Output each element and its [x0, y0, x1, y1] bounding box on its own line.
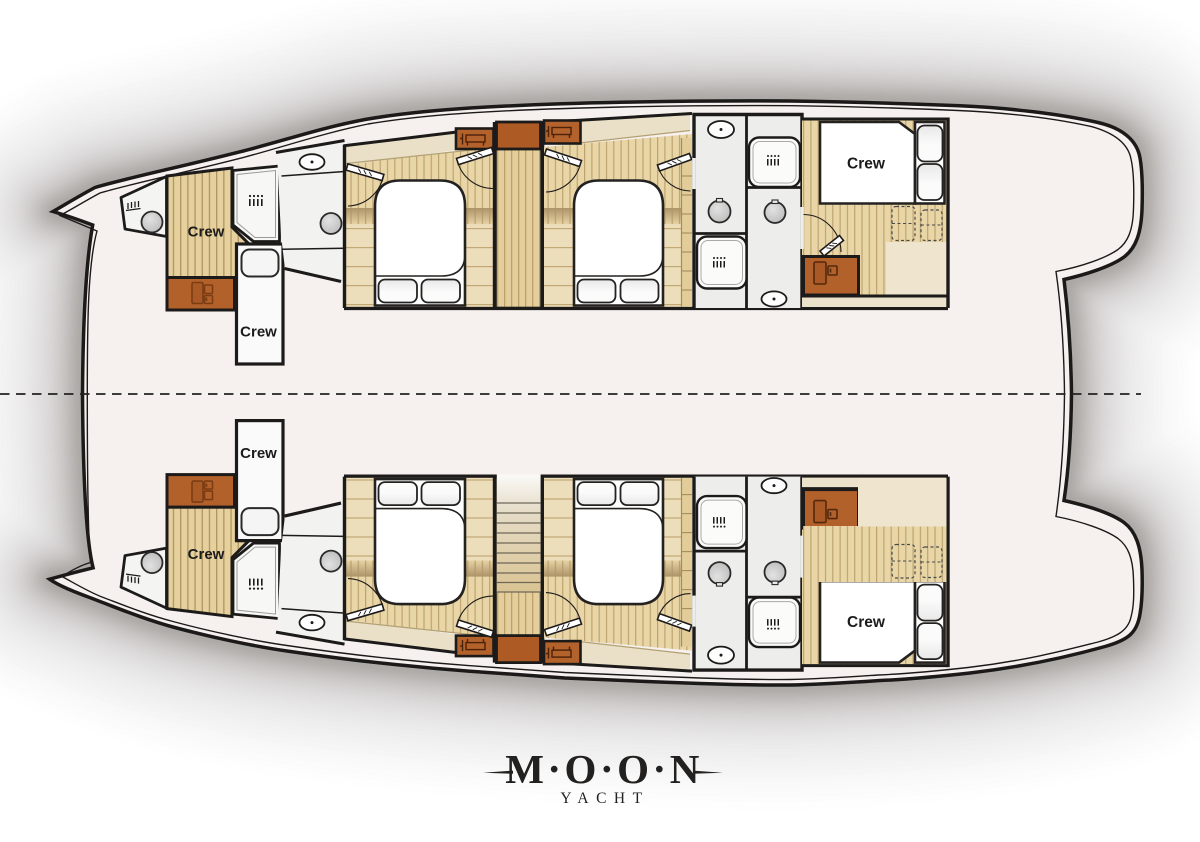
- svg-text:Crew: Crew: [847, 614, 886, 631]
- svg-text:M·O·O·N: M·O·O·N: [505, 746, 703, 792]
- svg-text:Crew: Crew: [188, 224, 225, 241]
- svg-text:YACHT: YACHT: [560, 790, 649, 807]
- svg-text:Crew: Crew: [188, 546, 225, 563]
- svg-text:Crew: Crew: [847, 156, 886, 173]
- svg-text:Crew: Crew: [240, 324, 277, 341]
- svg-text:Crew: Crew: [240, 445, 277, 462]
